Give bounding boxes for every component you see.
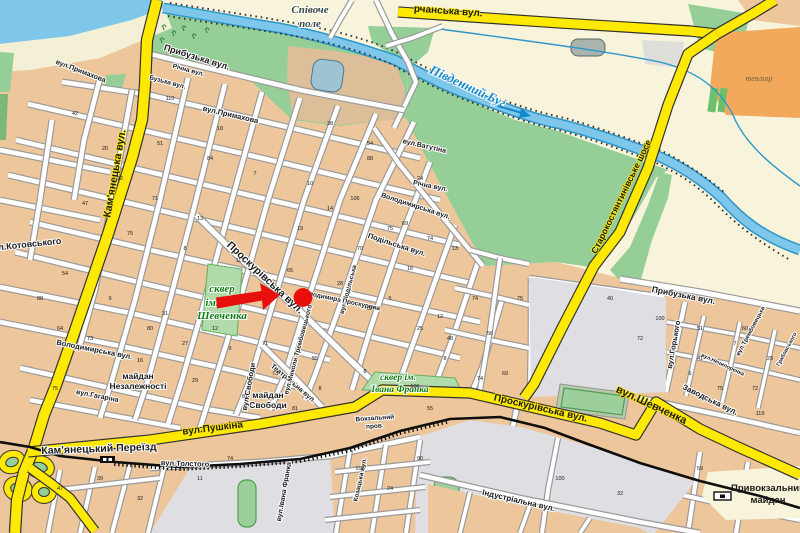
svg-text:31: 31 [162,311,168,317]
svg-text:55: 55 [427,406,433,412]
svg-text:119: 119 [756,411,765,417]
svg-text:100: 100 [655,316,664,322]
svg-text:24: 24 [417,176,423,182]
svg-text:8: 8 [363,369,366,375]
svg-text:24: 24 [387,486,393,492]
svg-text:Незалежності: Незалежності [109,381,166,391]
svg-text:69: 69 [402,221,408,227]
svg-text:39: 39 [97,476,103,482]
svg-text:56: 56 [487,331,493,337]
svg-text:29: 29 [767,356,773,362]
svg-text:88: 88 [367,156,373,162]
svg-text:27: 27 [182,341,188,347]
svg-text:Шевченка: Шевченка [196,310,247,322]
svg-text:28: 28 [337,281,343,287]
svg-text:106: 106 [350,196,359,202]
svg-text:71: 71 [262,341,268,347]
svg-text:8: 8 [318,386,321,392]
svg-text:сквер ім.: сквер ім. [380,372,416,383]
svg-text:25: 25 [417,326,423,332]
svg-text:75: 75 [717,386,723,392]
svg-text:47: 47 [82,201,88,207]
svg-text:64: 64 [57,326,63,332]
svg-text:47: 47 [57,486,63,492]
svg-text:38: 38 [327,121,333,127]
svg-text:Співоче: Співоче [291,4,328,16]
svg-text:пров.: пров. [366,422,384,430]
svg-text:32: 32 [617,491,623,497]
svg-text:54: 54 [367,141,373,147]
svg-text:73: 73 [87,336,93,342]
svg-text:9: 9 [228,346,231,352]
svg-text:82: 82 [367,306,373,312]
svg-text:16: 16 [407,266,413,272]
svg-text:майдан: майдан [750,495,785,506]
svg-text:110: 110 [166,96,175,102]
svg-text:65: 65 [287,268,293,274]
svg-text:73: 73 [272,371,278,377]
svg-text:75: 75 [127,231,133,237]
svg-text:12: 12 [212,326,218,332]
svg-text:48: 48 [447,336,453,342]
svg-text:Привокзальний: Привокзальний [731,483,800,494]
svg-text:74: 74 [477,376,483,382]
svg-text:74: 74 [472,296,478,302]
svg-text:88: 88 [37,296,43,302]
svg-text:75: 75 [52,386,58,392]
svg-text:72: 72 [637,336,643,342]
svg-text:6: 6 [688,371,691,377]
svg-text:59: 59 [697,466,703,472]
svg-text:сквер: сквер [209,283,235,295]
svg-text:5: 5 [388,296,391,302]
svg-text:41: 41 [697,356,703,362]
svg-text:14: 14 [327,206,333,212]
svg-text:74: 74 [227,456,233,462]
svg-text:70: 70 [357,246,363,252]
svg-text:Івана Франка: Івана Франка [370,385,428,395]
svg-text:16: 16 [137,358,143,364]
svg-text:9: 9 [108,296,111,302]
svg-text:поле: поле [299,18,321,30]
svg-text:20: 20 [102,146,108,152]
svg-text:10: 10 [307,181,313,187]
svg-text:13: 13 [197,216,203,222]
svg-text:вул.Толстого: вул.Толстого [161,458,210,469]
svg-text:майдан: майдан [122,371,153,381]
svg-text:40: 40 [607,296,613,302]
svg-text:72: 72 [752,386,758,392]
svg-text:60: 60 [742,326,748,332]
svg-text:51: 51 [157,141,163,147]
svg-text:71: 71 [152,196,158,202]
svg-text:92: 92 [117,176,123,182]
svg-text:81: 81 [242,394,248,400]
svg-text:106: 106 [410,384,419,390]
svg-text:Свободи: Свободи [249,400,286,410]
svg-text:8: 8 [443,356,446,362]
svg-text:7: 7 [733,341,736,347]
svg-text:29: 29 [192,378,198,384]
svg-text:75: 75 [517,296,523,302]
svg-text:32: 32 [137,496,143,502]
svg-text:19: 19 [297,226,303,232]
svg-text:55: 55 [312,356,318,362]
svg-text:теплиці: теплиці [745,74,772,83]
svg-text:84: 84 [207,156,213,162]
svg-text:7: 7 [253,171,256,177]
svg-text:90: 90 [417,456,423,462]
svg-text:69: 69 [502,371,508,377]
svg-text:12: 12 [437,314,443,320]
svg-text:майдан: майдан [252,390,283,400]
svg-text:74: 74 [427,236,433,242]
svg-text:75: 75 [387,226,393,232]
svg-text:100: 100 [555,476,564,482]
svg-text:81: 81 [292,406,298,412]
svg-text:102: 102 [355,466,364,472]
svg-text:42: 42 [72,111,78,117]
svg-text:11: 11 [197,476,203,482]
svg-text:8: 8 [183,246,186,252]
svg-text:51: 51 [697,326,703,332]
svg-text:54: 54 [62,271,68,277]
svg-text:18: 18 [217,126,223,132]
svg-text:80: 80 [147,326,153,332]
svg-text:13: 13 [452,246,458,252]
svg-text:117: 117 [236,258,245,264]
